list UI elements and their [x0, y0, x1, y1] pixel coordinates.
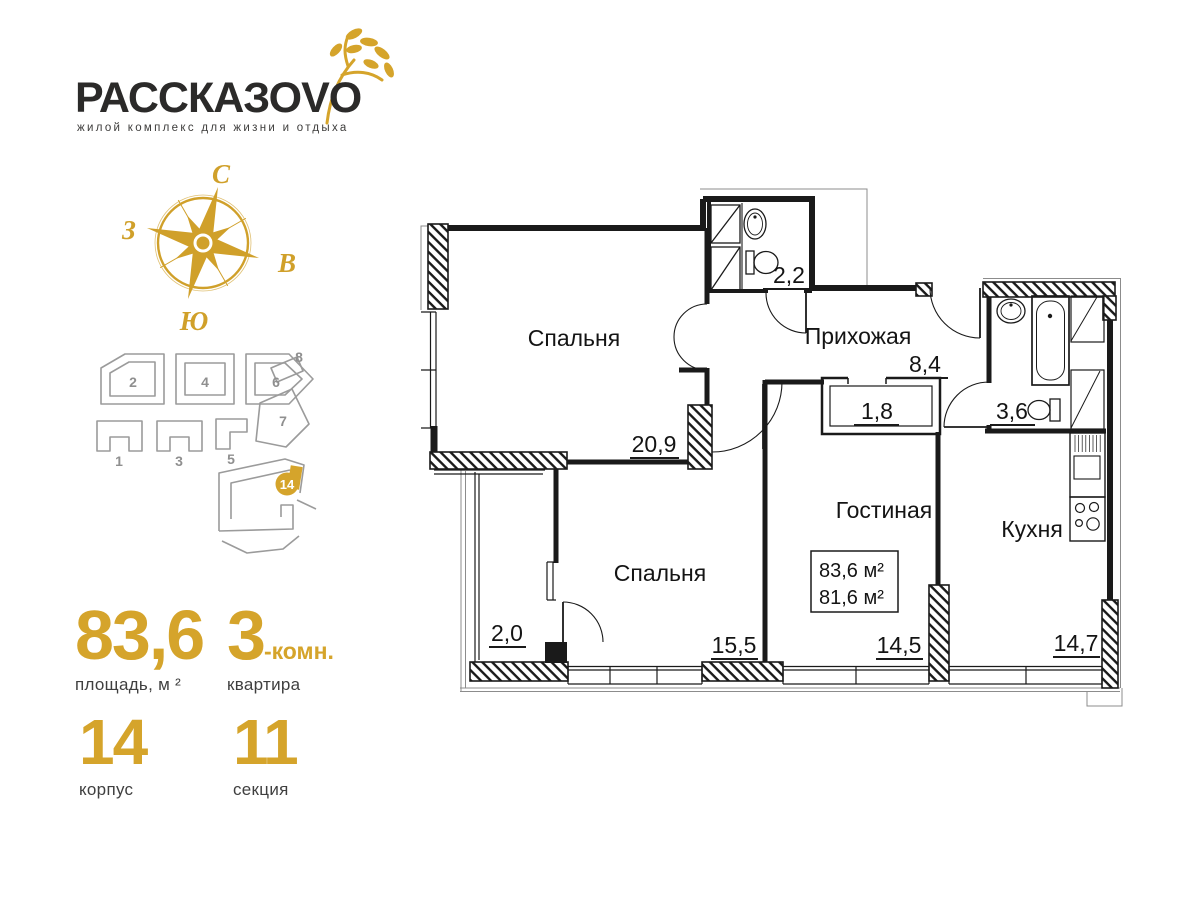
stat-area-value: 83,6	[75, 604, 203, 667]
stat-korpus-label: корпус	[79, 780, 146, 800]
room-label-living: Гостиная	[836, 497, 933, 523]
area-label-bath-small: 2,2	[773, 262, 805, 288]
area-label-balcony: 2,0	[491, 620, 523, 646]
area-label-living: 14,5	[877, 632, 922, 658]
info-total-area: 83,6 м²	[819, 560, 884, 582]
plan-bath-small-fixtures	[711, 203, 778, 293]
room-label-bedroom-1: Спальня	[528, 325, 620, 351]
stat-rooms: 3-комн. квартира	[227, 604, 334, 695]
info-living-area: 81,6 м²	[819, 587, 884, 609]
stat-rooms-label: квартира	[227, 675, 334, 695]
site-label-8: 8	[295, 349, 303, 365]
room-label-hallway: Прихожая	[805, 323, 912, 349]
site-label-4: 4	[201, 374, 209, 390]
area-label-kitchen: 14,7	[1054, 630, 1099, 656]
plan-outer-outline	[421, 189, 1122, 706]
plan-windows	[421, 312, 1102, 684]
area-label-hallway: 8,4	[909, 351, 941, 377]
site-label-2: 2	[129, 374, 137, 390]
site-label-5: 5	[227, 451, 235, 467]
stat-area: 83,6 площадь, м ²	[75, 604, 203, 695]
plan-hatched-piers	[428, 224, 1118, 688]
area-label-bath-big: 3,6	[996, 398, 1028, 424]
stat-rooms-suffix: -комн.	[264, 638, 334, 664]
area-label-closet: 1,8	[861, 398, 893, 424]
floor-plan: Спальня Прихожая Гостиная Спальня Кухня …	[400, 160, 1160, 720]
site-label-7: 7	[279, 413, 287, 429]
room-label-kitchen: Кухня	[1001, 516, 1063, 542]
site-plan: 1 2 3 4 5 6 7 8 14	[0, 0, 360, 580]
site-building-3	[157, 421, 202, 451]
site-label-6: 6	[272, 374, 280, 390]
stat-section: 11 секция	[233, 714, 297, 800]
stat-section-value: 11	[233, 714, 297, 772]
stat-section-label: секция	[233, 780, 297, 800]
site-building-5	[216, 419, 247, 449]
stat-korpus: 14 корпус	[79, 714, 146, 800]
plan-info-box: 83,6 м² 81,6 м²	[811, 551, 898, 612]
site-label-3: 3	[175, 453, 183, 469]
area-label-bedroom-2: 15,5	[712, 632, 757, 658]
site-label-1: 1	[115, 453, 123, 469]
stat-area-label: площадь, м ²	[75, 675, 203, 695]
page: { "logo": { "title": "РАССКАЗОVO", "tagl…	[0, 0, 1200, 900]
stat-rooms-value: 3	[227, 596, 264, 674]
room-label-bedroom-2: Спальня	[614, 560, 706, 586]
plan-walls	[434, 196, 1110, 662]
area-label-bedroom-1: 20,9	[632, 431, 677, 457]
site-building-14-badge-label: 14	[280, 477, 295, 492]
site-building-1	[97, 421, 142, 451]
stat-korpus-value: 14	[79, 714, 146, 772]
plan-kitchen-fixtures	[1070, 433, 1105, 541]
